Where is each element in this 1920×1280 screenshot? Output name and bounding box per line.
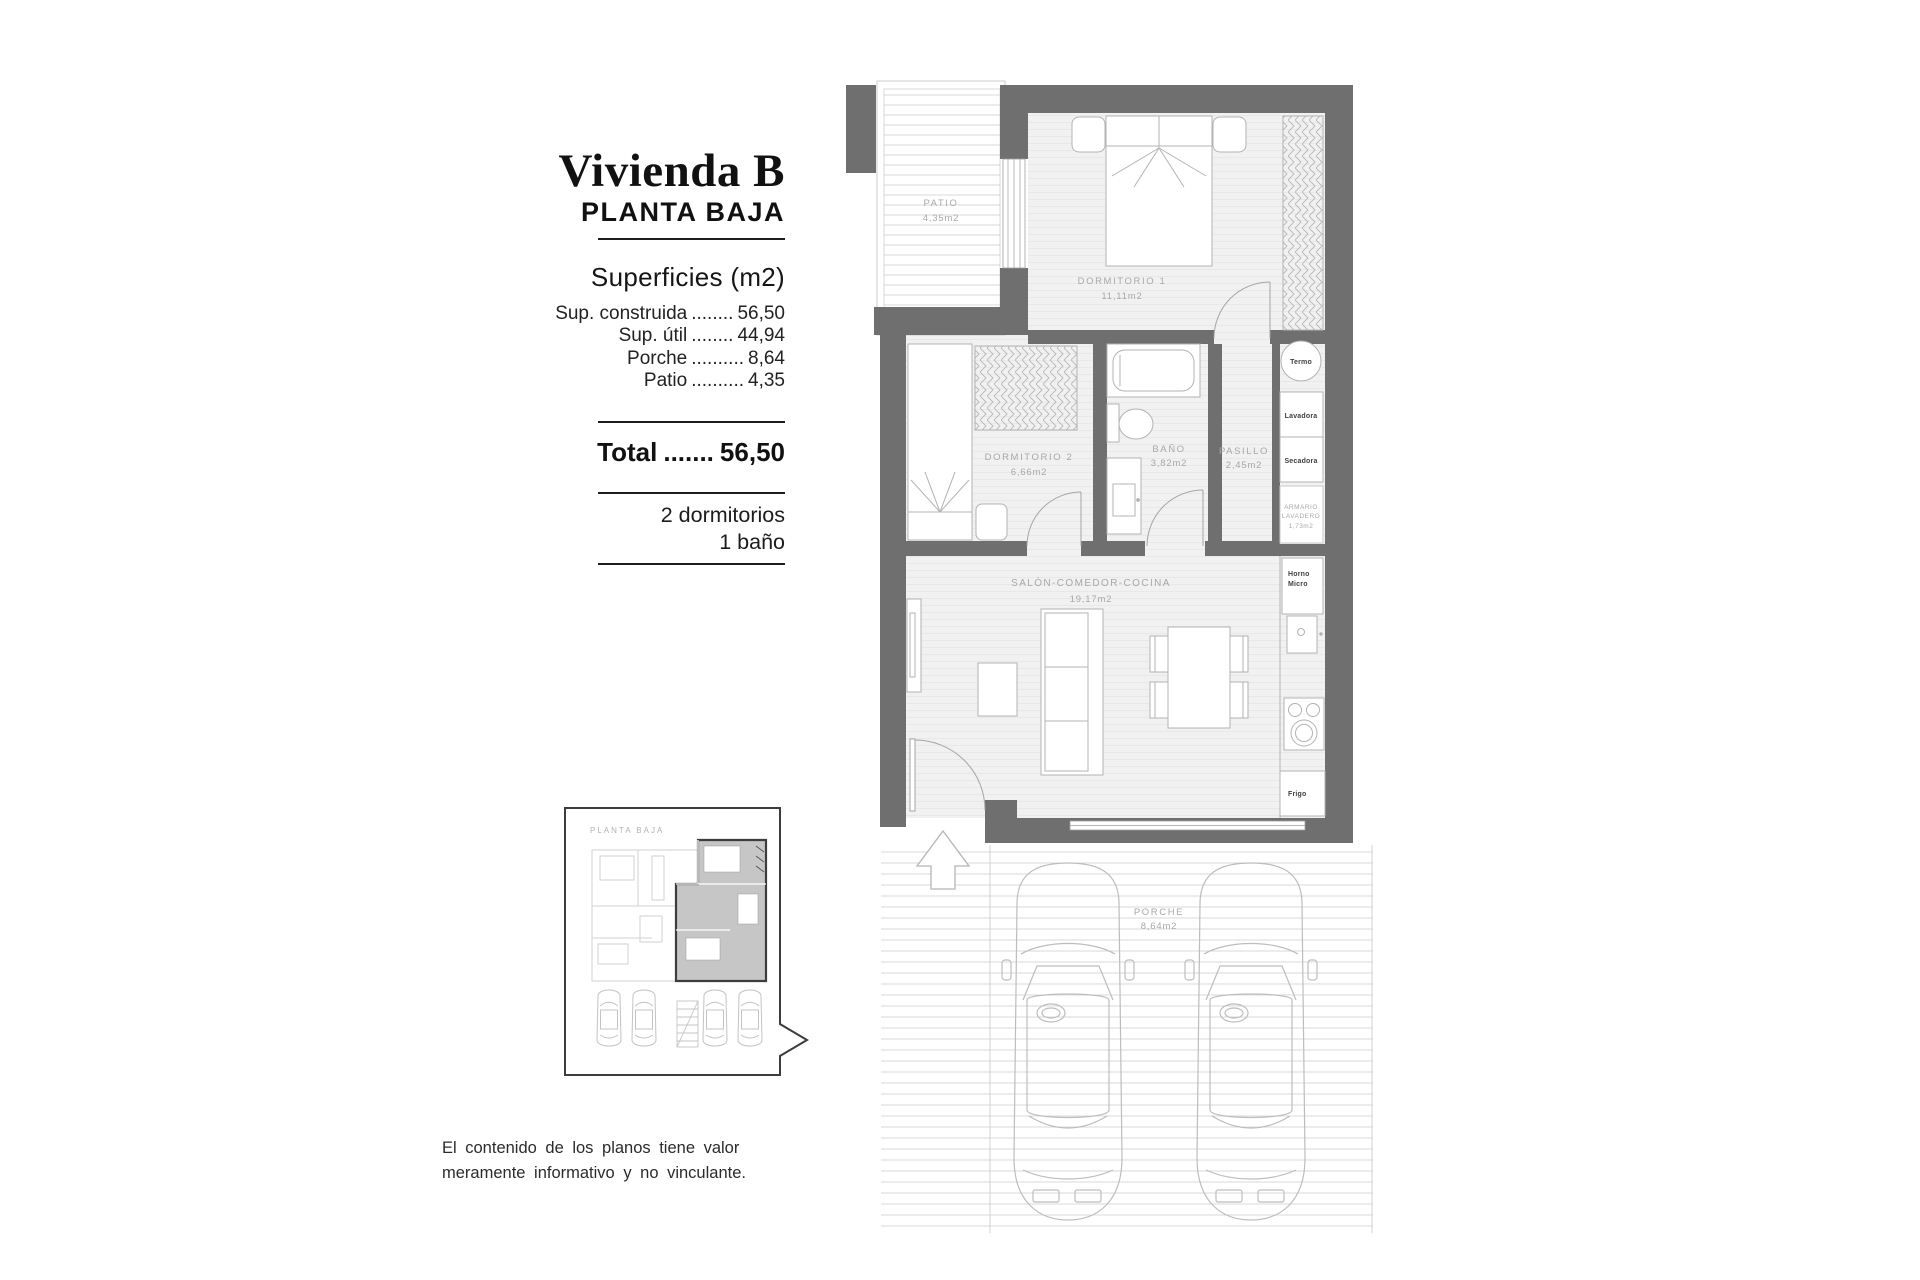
patio-label: PATIO	[923, 198, 958, 209]
termo-label: Termo	[1290, 359, 1312, 366]
inset-title: PLANTA BAJA	[590, 826, 664, 835]
armario-label2: LAVADERO	[1282, 513, 1320, 520]
nightstand	[1213, 117, 1246, 152]
porche-label: PORCHE	[1134, 907, 1184, 918]
dormitorio1-label: DORMITORIO 1	[1078, 276, 1167, 287]
pasillo-area: 2,45m2	[1226, 460, 1263, 471]
laundry-column: Termo Lavadora Secadora ARMARIO LAVADERO…	[1280, 341, 1323, 543]
dormitorio1-area: 11,11m2	[1101, 291, 1142, 302]
lavadora-label: Lavadora	[1285, 413, 1318, 420]
nightstand	[976, 504, 1007, 540]
chair	[1150, 636, 1168, 672]
chair	[1230, 636, 1248, 672]
micro-label: Micro	[1288, 581, 1308, 588]
dining-table	[1168, 627, 1230, 728]
patio-area: 4,35m2	[923, 213, 960, 224]
horno-label: Horno	[1288, 571, 1310, 578]
armario-area: 1,73m2	[1289, 523, 1314, 530]
porche-area: 8,64m2	[1141, 921, 1178, 932]
salon-label: SALÓN-COMEDOR-COCINA	[1011, 576, 1171, 589]
secadora-label: Secadora	[1284, 458, 1317, 465]
salon-area: 19,17m2	[1070, 594, 1113, 605]
dormitorio2-area: 6,66m2	[1011, 467, 1048, 478]
bano-label: BAÑO	[1152, 444, 1185, 455]
frigo-label: Frigo	[1288, 791, 1307, 798]
floorplan-page: Vivienda B PLANTA BAJA Superficies (m2) …	[0, 0, 1920, 1280]
dormitorio2-label: DORMITORIO 2	[985, 452, 1074, 463]
inset-stairs	[677, 1001, 698, 1047]
toilet-bowl	[1119, 409, 1153, 439]
wardrobe	[1283, 116, 1323, 330]
chair	[1230, 682, 1248, 718]
coffee-table	[978, 663, 1017, 716]
armario-label: ARMARIO	[1284, 504, 1318, 511]
window-salon-porch	[1070, 821, 1305, 830]
porch-paving	[881, 845, 1373, 1233]
patio: PATIO 4,35m2	[877, 81, 1005, 335]
wardrobe	[975, 346, 1077, 430]
bano-area: 3,82m2	[1151, 458, 1188, 469]
nightstand	[1072, 117, 1105, 152]
inset-plan: PLANTA BAJA	[565, 808, 807, 1075]
floorplan-drawing: PATIO 4,35m2	[0, 0, 1920, 1280]
toilet-cistern	[1107, 404, 1119, 442]
pasillo-label: PASILLO	[1219, 446, 1269, 457]
sink-basin	[1113, 484, 1135, 516]
window-patio	[1003, 159, 1025, 268]
chair	[1150, 682, 1168, 718]
